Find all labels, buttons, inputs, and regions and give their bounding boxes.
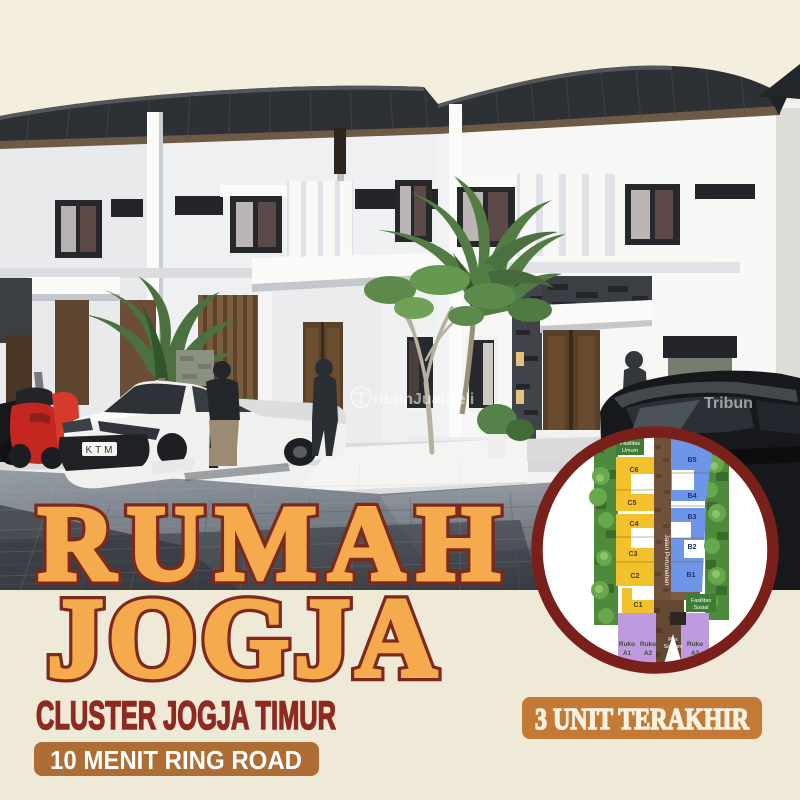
svg-text:ribunJualBeli: ribunJualBeli [373,391,474,408]
svg-text:Jalan Perumahan: Jalan Perumahan [663,535,670,586]
svg-text:3 UNIT TERAKHIR: 3 UNIT TERAKHIR [535,701,749,736]
svg-text:A1: A1 [623,650,632,657]
svg-text:10 MENIT RING ROAD: 10 MENIT RING ROAD [50,745,302,775]
svg-text:B5: B5 [688,457,697,464]
svg-text:B1: B1 [687,572,696,579]
svg-text:C1: C1 [634,602,643,609]
svg-text:B3: B3 [688,514,697,521]
svg-text:A2: A2 [644,650,653,657]
svg-text:C3: C3 [629,551,638,558]
svg-text:Tribun: Tribun [704,395,753,412]
svg-text:B2: B2 [688,544,697,551]
svg-text:C5: C5 [628,500,637,507]
svg-text:Ruko: Ruko [687,641,703,648]
svg-text:T: T [355,388,367,407]
svg-text:C6: C6 [630,467,639,474]
svg-text:CLUSTER JOGJA TIMUR: CLUSTER JOGJA TIMUR [36,694,336,738]
svg-text:C2: C2 [631,573,640,580]
svg-text:K T M: K T M [86,445,113,456]
svg-text:Sosial: Sosial [694,605,709,611]
svg-text:Umum: Umum [622,448,639,454]
svg-text:Ruko: Ruko [640,641,656,648]
svg-text:B4: B4 [688,493,697,500]
svg-text:C4: C4 [630,521,639,528]
svg-text:Ruko: Ruko [619,641,635,648]
svg-text:Fasilitas: Fasilitas [691,598,711,604]
